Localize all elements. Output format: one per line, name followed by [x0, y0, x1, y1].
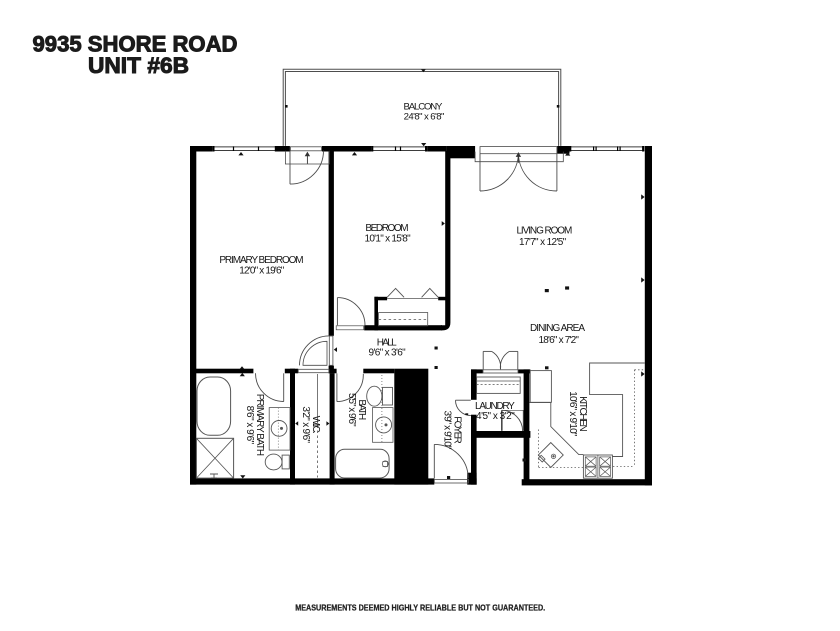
svg-text:12'0" x 19'6": 12'0" x 19'6" [239, 266, 284, 277]
svg-text:5'5" x 9'6": 5'5" x 9'6" [346, 393, 357, 427]
svg-text:8'6" x 9'6": 8'6" x 9'6" [244, 406, 255, 445]
svg-text:18'6" x 7'2": 18'6" x 7'2" [538, 335, 579, 346]
svg-text:UNIT #6B: UNIT #6B [88, 53, 189, 78]
svg-text:10'1" x 15'8": 10'1" x 15'8" [365, 233, 412, 244]
svg-text:3'2" x 9'6": 3'2" x 9'6" [300, 406, 311, 443]
svg-text:10'6" x 9'10": 10'6" x 9'10" [567, 391, 578, 437]
svg-text:DINING AREA: DINING AREA [530, 323, 585, 334]
svg-text:MEASUREMENTS DEEMED HIGHLY REL: MEASUREMENTS DEEMED HIGHLY RELIABLE BUT … [295, 604, 545, 613]
svg-text:24'8" x 6'8": 24'8" x 6'8" [404, 112, 445, 123]
svg-text:PRIMARY BEDROOM: PRIMARY BEDROOM [219, 255, 303, 266]
svg-text:17'7" x 12'5": 17'7" x 12'5" [519, 237, 567, 248]
svg-text:9'6" x 3'6": 9'6" x 3'6" [369, 347, 407, 358]
svg-text:4'5" x 3'2": 4'5" x 3'2" [476, 411, 515, 422]
svg-text:LIVING ROOM: LIVING ROOM [516, 226, 572, 237]
svg-text:3'9" x 9'10": 3'9" x 9'10" [441, 411, 452, 450]
